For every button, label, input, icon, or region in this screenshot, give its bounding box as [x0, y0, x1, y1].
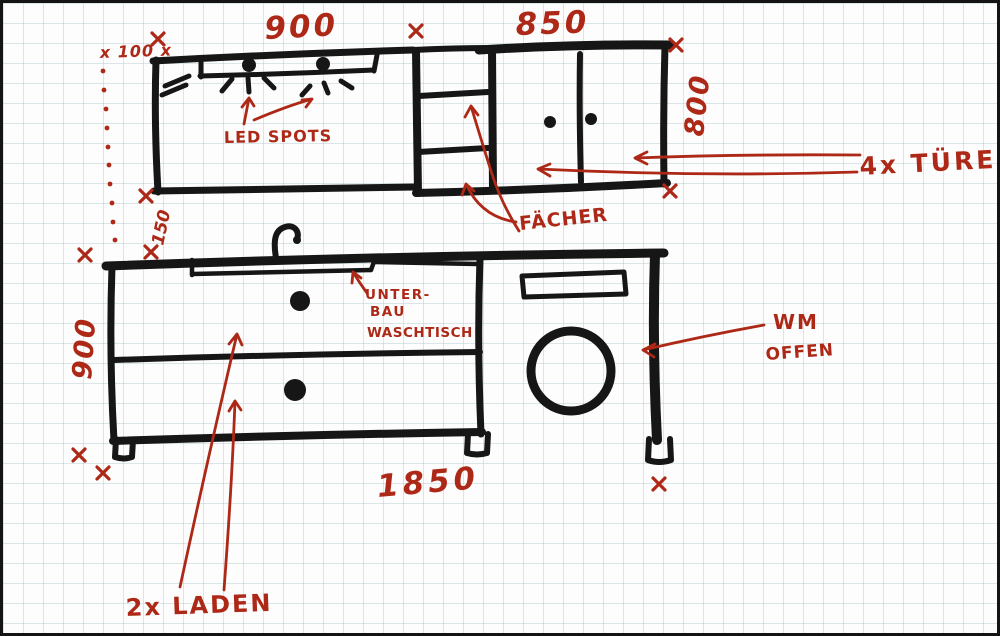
dim-900-top: 900	[264, 7, 340, 47]
wm-door	[531, 331, 611, 411]
label-faecher: FÄCHER	[518, 202, 609, 235]
tuere-arrow-1	[635, 152, 860, 164]
drawer-knob	[290, 291, 310, 311]
sketch-canvas: 900 850 x 100 x 800 150 900 1850 LED SPO…	[3, 3, 1000, 636]
upper-shelf-unit	[413, 48, 495, 193]
dim-800-right: 800	[679, 72, 716, 137]
washing-machine-bay	[522, 254, 657, 440]
drawer-cabinet	[111, 258, 482, 441]
label-unterbau-line3: WASCHTISCH	[367, 325, 473, 341]
upper-left-cabinet	[153, 50, 415, 192]
laden-arrow-2	[224, 401, 241, 590]
label-unterbau-line1: UNTER-	[365, 287, 431, 303]
label-tuere: 4x TÜRE	[859, 144, 997, 181]
label-wm-line1: WM	[773, 310, 819, 334]
led-arrow-2	[254, 99, 312, 120]
wm-arrow	[643, 325, 764, 357]
wm-control-panel	[522, 272, 626, 297]
label-led-spots: LED SPOTS	[224, 126, 333, 147]
base-cabinets-drawing	[106, 226, 671, 462]
tuere-arrow-2	[538, 164, 857, 176]
graph-paper-sheet: 900 850 x 100 x 800 150 900 1850 LED SPO…	[0, 0, 1000, 636]
dim-900-left: 900	[67, 316, 102, 380]
dim-150-gap: 150	[148, 208, 175, 247]
red-annotations: 900 850 x 100 x 800 150 900 1850 LED SPO…	[67, 4, 997, 622]
led-arrow-1	[242, 98, 254, 124]
faucet-icon	[275, 226, 301, 258]
annotation-arrows	[180, 98, 860, 590]
label-unterbau-line2: BAU	[370, 304, 406, 320]
dim-1850-bottom: 1850	[376, 460, 481, 505]
label-wm-line2: OFFEN	[765, 340, 835, 365]
upper-right-cabinet	[416, 45, 672, 193]
dim-850-top: 850	[515, 4, 590, 43]
dotted-reference-line	[101, 69, 118, 243]
label-laden: 2x LADEN	[125, 589, 273, 622]
door-knob	[585, 113, 597, 125]
hatch-mark	[162, 76, 189, 95]
dim-100-offset: x 100 x	[98, 40, 172, 62]
drawer-knob	[284, 379, 306, 401]
door-knob	[544, 116, 556, 128]
